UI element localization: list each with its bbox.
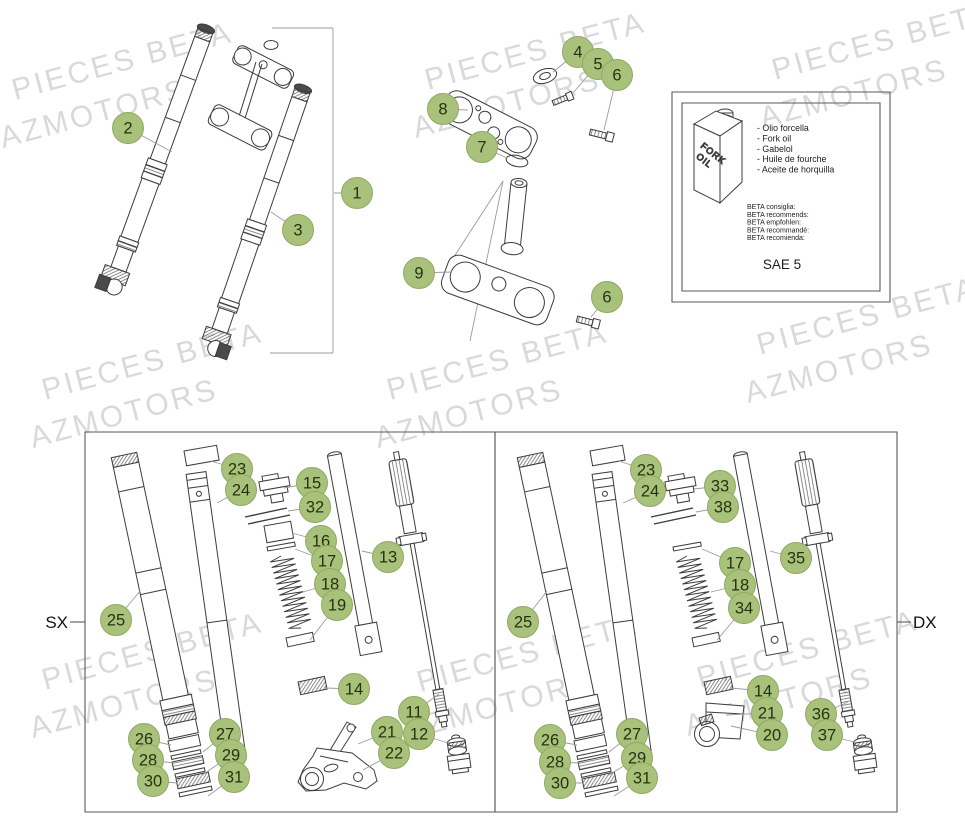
part-number: 24	[232, 481, 250, 499]
part-number: 4	[573, 43, 582, 61]
oil-name-item: - Olio forcella	[757, 123, 809, 133]
part-number: 27	[623, 725, 641, 743]
part-callout-24[interactable]: 24	[635, 476, 666, 507]
part-callout-25[interactable]: 25	[508, 607, 539, 638]
part-callout-31[interactable]: 31	[627, 763, 658, 794]
oil-name-item: - Aceite de horquilla	[757, 165, 834, 175]
spring-drawing	[676, 556, 717, 628]
sx-panel-label: SX	[45, 613, 68, 632]
part-callout-2[interactable]: 2	[113, 113, 144, 144]
oil-name-item: - Gabelol	[757, 144, 793, 154]
part-callout-3[interactable]: 3	[283, 215, 314, 246]
part-callout-12[interactable]: 12	[404, 719, 435, 750]
part-number: 32	[306, 498, 324, 516]
part-number: 34	[735, 599, 753, 617]
part-number: 25	[514, 613, 532, 631]
oil-recommendation-list: BETA consiglia:BETA recommends:BETA empf…	[747, 204, 809, 242]
fork-oil-info-box: FORK OIL - Olio forcella- Fork oil- Gabe…	[672, 92, 890, 302]
oil-name-item: - Huile de fourche	[757, 154, 827, 164]
parts-diagram-page: PIECES BETAAZMOTORSPIECES BETAAZMOTORSPI…	[0, 0, 965, 827]
part-number: 25	[107, 611, 125, 629]
part-callout-9[interactable]: 9	[404, 258, 435, 289]
part-number: 24	[641, 482, 659, 500]
oil-can-drawing: FORK OIL	[692, 109, 742, 203]
part-callout-6[interactable]: 6	[602, 60, 633, 91]
oil-grade-label: SAE 5	[763, 257, 801, 272]
part-number: 37	[818, 726, 836, 744]
part-number: 30	[144, 772, 162, 790]
part-number: 2	[123, 119, 132, 137]
part-number: 22	[385, 744, 403, 762]
part-callout-1[interactable]: 1	[342, 178, 373, 209]
part-callout-30[interactable]: 30	[545, 768, 576, 799]
part-callout-34[interactable]: 34	[729, 593, 760, 624]
part-number: 6	[602, 288, 611, 306]
part-number: 20	[763, 726, 781, 744]
part-number: 31	[633, 769, 651, 787]
part-number: 38	[714, 498, 732, 516]
part-callout-38[interactable]: 38	[708, 492, 739, 523]
part-number: 7	[477, 138, 486, 156]
part-callout-35[interactable]: 35	[781, 543, 812, 574]
part-number: 15	[303, 474, 321, 492]
sx-axle-bracket-drawing	[298, 722, 377, 791]
part-number: 3	[293, 221, 302, 239]
part-callout-37[interactable]: 37	[812, 720, 843, 751]
part-number: 8	[438, 100, 447, 118]
part-number: 14	[345, 680, 363, 698]
part-number: 18	[731, 576, 749, 594]
part-callout-22[interactable]: 22	[379, 738, 410, 769]
exploded-panels: SX DX	[45, 432, 936, 812]
part-callout-13[interactable]: 13	[373, 542, 404, 573]
part-number: 9	[414, 264, 423, 282]
part-number: 6	[612, 66, 621, 84]
part-number: 5	[593, 55, 602, 73]
oil-name-item: - Fork oil	[757, 133, 791, 143]
oil-recommendation-item: BETA consiglia:	[747, 204, 796, 211]
lower-triple-clamp-drawing	[438, 177, 557, 341]
part-callout-32[interactable]: 32	[300, 492, 331, 523]
part-callout-20[interactable]: 20	[757, 720, 788, 751]
spring-drawing	[270, 556, 311, 628]
part-number: 17	[318, 552, 336, 570]
part-callout-31[interactable]: 31	[219, 762, 250, 793]
part-callout-30[interactable]: 30	[138, 766, 169, 797]
oil-recommendation-item: BETA recomienda:	[747, 235, 805, 242]
part-number: 1	[352, 184, 361, 202]
exploded-fork-diagram: PIECES BETAAZMOTORSPIECES BETAAZMOTORSPI…	[0, 0, 965, 827]
part-number: 35	[787, 549, 805, 567]
oil-name-list: - Olio forcella- Fork oil- Gabelol- Huil…	[757, 123, 834, 175]
part-callout-8[interactable]: 8	[428, 94, 459, 125]
dx-panel-label: DX	[913, 613, 937, 632]
part-number: 30	[551, 774, 569, 792]
part-number: 19	[328, 596, 346, 614]
oil-recommendation-item: BETA recommends:	[747, 212, 809, 219]
part-number: 12	[410, 725, 428, 743]
part-callout-19[interactable]: 19	[322, 590, 353, 621]
part-callout-14[interactable]: 14	[339, 674, 370, 705]
part-callout-7[interactable]: 7	[467, 132, 498, 163]
part-callout-25[interactable]: 25	[101, 605, 132, 636]
oil-recommendation-item: BETA empfohlen:	[747, 220, 801, 227]
part-number: 31	[225, 768, 243, 786]
part-callout-6[interactable]: 6	[592, 282, 623, 313]
part-number: 13	[379, 548, 397, 566]
bolt-6-upper-drawing	[589, 128, 614, 143]
part-callout-24[interactable]: 24	[226, 475, 257, 506]
oil-recommendation-item: BETA recommandé:	[747, 227, 809, 234]
